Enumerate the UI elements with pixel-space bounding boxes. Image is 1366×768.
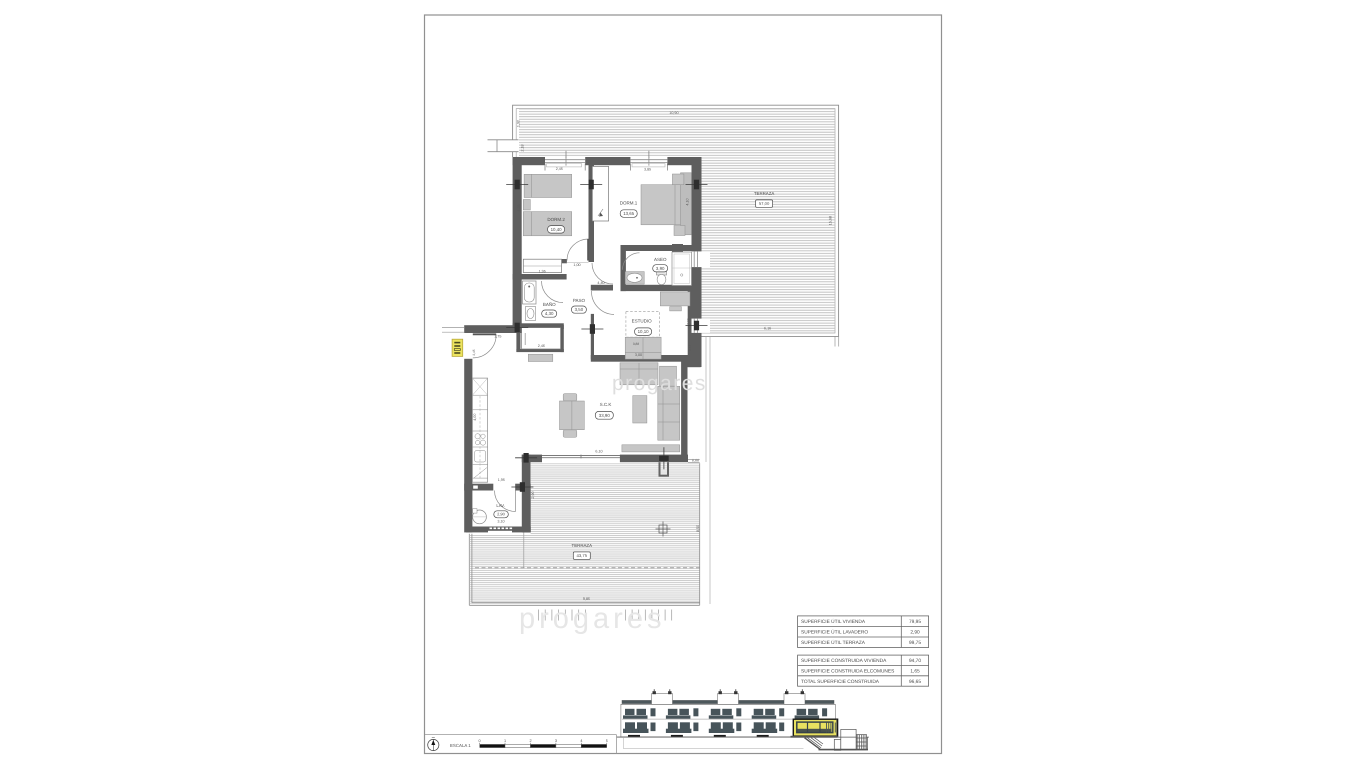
svg-text:33,90: 33,90 bbox=[599, 413, 611, 418]
svg-text:SUPERFICIE ÚTIL LAVADERO: SUPERFICIE ÚTIL LAVADERO bbox=[801, 629, 868, 636]
svg-text:ASEO: ASEO bbox=[654, 257, 667, 262]
svg-text:96,65: 96,65 bbox=[909, 679, 921, 685]
svg-text:2,46: 2,46 bbox=[538, 344, 545, 348]
svg-text:79,95: 79,95 bbox=[909, 619, 921, 625]
svg-text:3,88: 3,88 bbox=[633, 342, 639, 346]
svg-text:6,16: 6,16 bbox=[764, 327, 771, 331]
svg-text:3,10: 3,10 bbox=[497, 519, 504, 523]
svg-text:15,68: 15,68 bbox=[829, 216, 833, 225]
svg-text:1: 1 bbox=[504, 739, 506, 743]
svg-text:ESTUDIO: ESTUDIO bbox=[632, 318, 653, 323]
svg-text:8,50: 8,50 bbox=[696, 525, 700, 532]
svg-text:2,90: 2,90 bbox=[497, 512, 506, 517]
svg-text:3,43: 3,43 bbox=[688, 345, 692, 351]
svg-text:2,45: 2,45 bbox=[556, 167, 563, 171]
svg-text:DORM.1: DORM.1 bbox=[620, 201, 638, 206]
svg-text:ESCALA 1: ESCALA 1 bbox=[450, 743, 471, 748]
svg-text:DORM.2: DORM.2 bbox=[547, 217, 565, 222]
svg-text:4,28: 4,28 bbox=[517, 204, 521, 211]
svg-text:10,40: 10,40 bbox=[551, 227, 563, 232]
svg-text:4,10: 4,10 bbox=[685, 198, 689, 205]
svg-text:6,10: 6,10 bbox=[595, 450, 602, 454]
svg-text:99,75: 99,75 bbox=[909, 640, 921, 646]
svg-text:4,40: 4,40 bbox=[597, 281, 604, 285]
svg-text:1,00: 1,00 bbox=[573, 263, 580, 267]
svg-text:1,95: 1,95 bbox=[498, 478, 505, 482]
svg-text:SUPERFICIE CONSTRUIDA ELCOMUNE: SUPERFICIE CONSTRUIDA ELCOMUNES bbox=[801, 669, 894, 675]
svg-text:progares: progares bbox=[519, 603, 665, 635]
svg-text:TOTAL SUPERFICIE CONSTRUIDA: TOTAL SUPERFICIE CONSTRUIDA bbox=[801, 679, 880, 685]
svg-text:2,90: 2,90 bbox=[531, 491, 535, 498]
svg-text:5: 5 bbox=[606, 739, 608, 743]
svg-text:13,65: 13,65 bbox=[623, 211, 635, 216]
svg-text:4,00: 4,00 bbox=[473, 414, 477, 421]
svg-text:2,08: 2,08 bbox=[687, 318, 691, 324]
svg-text:6,66: 6,66 bbox=[692, 459, 699, 463]
svg-text:1,65: 1,65 bbox=[910, 669, 920, 675]
svg-text:progares: progares bbox=[612, 372, 707, 395]
svg-text:TERRAZA: TERRAZA bbox=[572, 543, 593, 548]
svg-text:TERRAZA: TERRAZA bbox=[754, 191, 775, 196]
svg-text:3,50: 3,50 bbox=[575, 307, 584, 312]
svg-text:4,30: 4,30 bbox=[545, 311, 554, 316]
svg-text:1,75: 1,75 bbox=[494, 335, 501, 339]
svg-text:10,10: 10,10 bbox=[638, 329, 650, 334]
svg-text:0: 0 bbox=[479, 739, 481, 743]
svg-text:S.C.K: S.C.K bbox=[600, 402, 612, 407]
svg-text:SUPERFICIE ÚTIL TERRAZA: SUPERFICIE ÚTIL TERRAZA bbox=[801, 639, 866, 646]
svg-text:3,85: 3,85 bbox=[644, 167, 651, 171]
svg-text:3,00: 3,00 bbox=[635, 353, 642, 357]
svg-text:94,70: 94,70 bbox=[909, 658, 921, 664]
svg-text:2,45: 2,45 bbox=[472, 349, 476, 355]
svg-text:57,00: 57,00 bbox=[759, 201, 770, 206]
svg-text:2,18: 2,18 bbox=[521, 144, 525, 151]
svg-text:9,85: 9,85 bbox=[583, 597, 590, 601]
svg-text:SUPERFICIE ÚTIL VIVIENDA: SUPERFICIE ÚTIL VIVIENDA bbox=[801, 618, 866, 625]
svg-text:4: 4 bbox=[580, 739, 582, 743]
svg-text:LAV.: LAV. bbox=[496, 503, 504, 508]
svg-text:2,90: 2,90 bbox=[910, 630, 920, 636]
svg-text:2: 2 bbox=[529, 739, 531, 743]
svg-text:3: 3 bbox=[555, 739, 557, 743]
svg-text:1,90: 1,90 bbox=[517, 120, 521, 127]
svg-text:1,95: 1,95 bbox=[539, 269, 546, 273]
svg-text:BAÑO: BAÑO bbox=[543, 302, 556, 307]
svg-text:10,90: 10,90 bbox=[669, 111, 678, 115]
svg-text:PASO: PASO bbox=[573, 298, 586, 303]
svg-text:43,75: 43,75 bbox=[577, 553, 588, 558]
svg-text:3,90: 3,90 bbox=[656, 266, 665, 271]
svg-text:SUPERFICIE CONSTRUIDA VIVIENDA: SUPERFICIE CONSTRUIDA VIVIENDA bbox=[801, 658, 887, 664]
